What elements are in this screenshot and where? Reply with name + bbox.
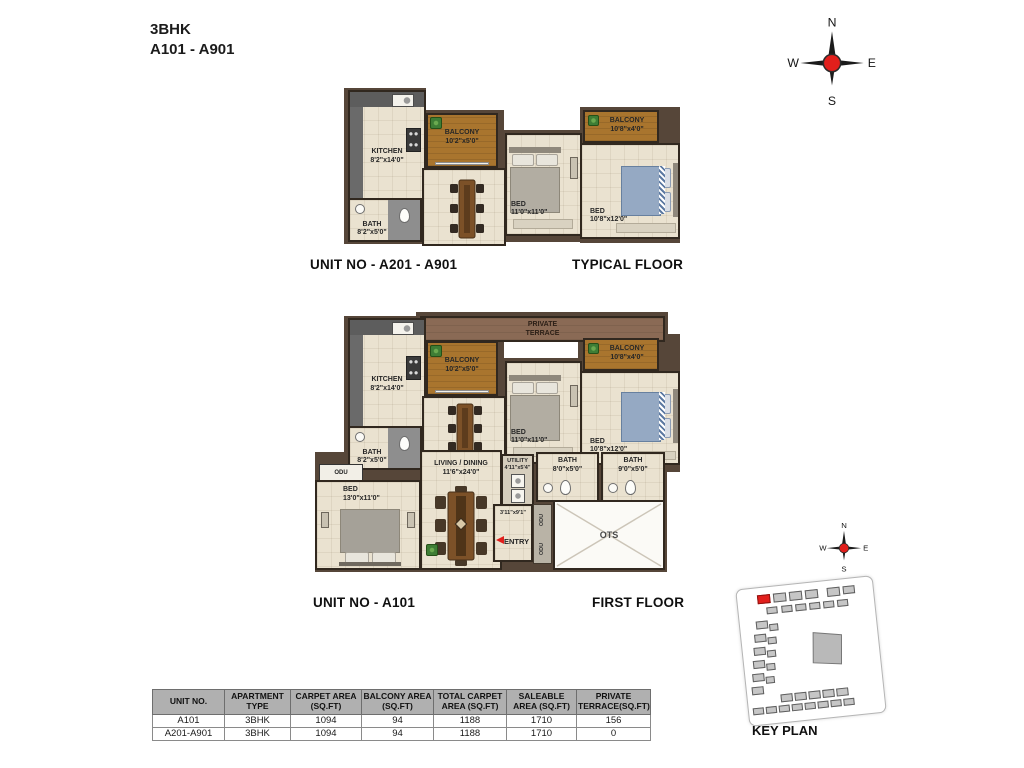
table-cell: 3BHK (225, 714, 291, 727)
unit-label-typical: UNIT NO - A201 - A901 (310, 257, 457, 272)
compass-s-label: S (828, 94, 836, 108)
table-cell: 1094 (291, 727, 362, 740)
entry-arrow-icon (496, 536, 504, 544)
toilet-icon (399, 436, 410, 451)
dining-table-icon (450, 174, 484, 244)
room-balcony-2: BALCONY 10'8"x4'0" (583, 110, 659, 143)
room-name: KITCHEN (356, 148, 418, 157)
table-cell: 1188 (434, 714, 507, 727)
key-plan-building (830, 699, 842, 707)
room-dim: 8'2"x5'0" (352, 229, 392, 238)
bed-icon (339, 508, 401, 566)
room-name: BATH (538, 457, 597, 466)
plant-icon (430, 117, 442, 129)
table-cell: A101 (153, 714, 225, 727)
room-name: UTILITY (503, 458, 532, 465)
bed-icon (620, 163, 678, 217)
balcony-railing (435, 390, 489, 393)
table-header-cell: PRIVATE TERRACE(SQ.FT) (577, 690, 651, 715)
rug (513, 219, 573, 229)
key-plan-building (836, 687, 849, 696)
room-name: LIVING / DINING (422, 460, 500, 469)
room-dim: 9'0"x5'0" (603, 466, 663, 475)
room-bed-1: BED 11'0"x11'0" (505, 361, 582, 464)
page-title: 3BHK A101 - A901 (150, 20, 235, 59)
room-dining (422, 396, 506, 456)
washer-icon (392, 322, 414, 335)
entry-dim: 3'11"x9'1" (495, 510, 531, 517)
room-ots: OTS (553, 500, 665, 570)
key-plan-building (822, 689, 835, 698)
room-dim: 10'2"x5'0" (428, 138, 496, 147)
room-dim: 8'0"x5'0" (538, 466, 597, 475)
room-utility: UTILITY 4'11"x5'4" (501, 454, 534, 506)
room-name: BED (511, 429, 547, 438)
bed-icon (620, 389, 678, 443)
key-plan-building (781, 605, 793, 613)
room-kitchen: KITCHEN 8'2"x14'0" (348, 318, 426, 428)
odu-strip: ODU ODU (533, 504, 552, 564)
washer-icon (392, 94, 414, 107)
key-plan-building (769, 623, 779, 631)
nightstand-icon (407, 512, 415, 528)
room-name: BED (343, 486, 380, 495)
key-plan-building (843, 698, 855, 706)
room-dim: 8'2"x14'0" (356, 385, 418, 394)
table-header-cell: BALCONY AREA (SQ.FT) (362, 690, 434, 715)
table-header-cell: APARTMENT TYPE (225, 690, 291, 715)
room-dining (422, 168, 506, 246)
odu-label: ODU (539, 542, 545, 554)
washer-icon (511, 489, 525, 503)
key-plan-building (794, 692, 807, 701)
room-living-dining: LIVING / DINING 11'6"x24'0" (420, 450, 502, 570)
toilet-icon (625, 480, 636, 495)
room-dim: 11'0"x11'0" (511, 209, 547, 218)
room-dim: 8'2"x5'0" (352, 457, 392, 466)
room-name: BED (590, 438, 627, 447)
compass-s-label: S (841, 564, 846, 573)
room-name: BATH (603, 457, 663, 466)
key-plan-building (842, 585, 855, 594)
key-plan-building (795, 603, 807, 611)
table-cell: 1188 (434, 727, 507, 740)
table-cell: 1710 (507, 714, 577, 727)
compass-e-label: E (868, 56, 876, 70)
dresser-icon (570, 385, 578, 407)
key-plan-building (773, 592, 787, 602)
key-plan-building (767, 650, 777, 658)
room-name: BALCONY (428, 129, 496, 138)
key-plan-building (766, 663, 776, 671)
table-cell: 0 (577, 727, 651, 740)
room-name: BED (511, 201, 547, 210)
room-dim: 8'2"x14'0" (356, 157, 418, 166)
table-header-cell: TOTAL CARPET AREA (SQ.FT) (434, 690, 507, 715)
key-plan-building (753, 707, 765, 715)
key-plan-building (791, 703, 803, 711)
table-cell: A201-A901 (153, 727, 225, 740)
room-name: KITCHEN (356, 376, 418, 385)
key-plan-building (766, 706, 778, 714)
room-bath-3: BATH 9'0"x5'0" (601, 452, 665, 502)
compass-rose-icon-small: N W E S (819, 520, 869, 574)
key-plan-building (779, 705, 791, 713)
key-plan (735, 575, 887, 727)
key-plan-highlighted-building (757, 594, 771, 604)
entry-label: ENTRY (504, 537, 529, 546)
key-plan-building (837, 599, 849, 607)
living-table-icon (434, 486, 488, 566)
odu-label: ODU (334, 470, 347, 476)
room-dim: 10'2"x5'0" (428, 366, 496, 375)
room-name: BATH (352, 221, 392, 230)
table-cell: 94 (362, 727, 434, 740)
floor-plan-first: PRIVATE TERRACE KITCHEN 8'2"x14'0" BATH … (315, 312, 680, 574)
room-kitchen: KITCHEN 8'2"x14'0" (348, 90, 426, 200)
room-bath-2: BATH 8'0"x5'0" (536, 452, 599, 502)
plant-icon (426, 544, 438, 556)
room-name: OTS (600, 530, 619, 540)
table-header-row: UNIT NO.APARTMENT TYPECARPET AREA (SQ.FT… (153, 690, 651, 715)
table-cell: 156 (577, 714, 651, 727)
dining-table-icon (448, 400, 482, 456)
key-plan-building (804, 702, 816, 710)
table-cell: 3BHK (225, 727, 291, 740)
sink-icon (543, 483, 553, 493)
key-plan-building (805, 589, 819, 599)
key-plan-building (752, 673, 765, 682)
sink-icon (355, 432, 365, 442)
key-plan-building (823, 600, 835, 608)
balcony-railing (435, 162, 489, 165)
room-bath: BATH 8'2"x5'0" (348, 198, 422, 242)
room-bed-1: BED 11'0"x11'0" (505, 133, 582, 236)
room-name: BATH (352, 449, 392, 458)
room-balcony-1: BALCONY 10'2"x5'0" (426, 113, 498, 168)
table-header-cell: CARPET AREA (SQ.FT) (291, 690, 362, 715)
room-dim: 10'8"x12'0" (590, 216, 627, 225)
room-bed-2: BED 10'8"x12'0" (580, 143, 680, 239)
room-name: BALCONY (428, 357, 496, 366)
key-plan-building (817, 700, 829, 708)
area-table-head: UNIT NO.APARTMENT TYPECARPET AREA (SQ.FT… (153, 690, 651, 715)
floor-plan-sheet: 3BHK A101 - A901 N W E S KITCHEN 8'2"x14… (0, 0, 1024, 768)
compass-e-label: E (863, 543, 868, 552)
table-cell: 1710 (507, 727, 577, 740)
room-name: BALCONY (597, 345, 657, 354)
key-plan-building (753, 660, 766, 669)
toilet-icon (560, 480, 571, 495)
floor-label-first: FIRST FLOOR (592, 595, 684, 610)
table-header-cell: UNIT NO. (153, 690, 225, 715)
sink-icon (355, 204, 365, 214)
plant-icon (430, 345, 442, 357)
room-dim: 10'8"x12'0" (590, 446, 627, 455)
unit-label-first: UNIT NO - A101 (313, 595, 415, 610)
key-plan-building (751, 686, 764, 695)
room-bath: BATH 8'2"x5'0" (348, 426, 422, 470)
area-table-body: A1013BHK10949411881710156A201-A9013BHK10… (153, 714, 651, 741)
room-balcony-1: BALCONY 10'2"x5'0" (426, 341, 498, 396)
nightstand-icon (321, 512, 329, 528)
key-plan-building (756, 620, 769, 629)
room-bed-2: BED 10'8"x12'0" (580, 371, 680, 465)
table-header-cell: SALEABLE AREA (SQ.FT) (507, 690, 577, 715)
key-plan-building (780, 693, 793, 702)
floor-label-typical: TYPICAL FLOOR (572, 257, 683, 272)
table-row: A201-A9013BHK109494118817100 (153, 727, 651, 740)
room-name: BALCONY (597, 117, 657, 126)
odu-label: ODU (539, 513, 545, 525)
sink-icon (608, 483, 618, 493)
table-row: A1013BHK10949411881710156 (153, 714, 651, 727)
room-dim: 11'6"x24'0" (422, 469, 500, 478)
room-dim: 13'0"x11'0" (343, 495, 380, 504)
toilet-icon (399, 208, 410, 223)
table-cell: 94 (362, 714, 434, 727)
compass-n-label: N (841, 521, 847, 530)
key-plan-building (789, 591, 803, 601)
key-plan-building (808, 690, 821, 699)
room-name: BED (590, 208, 627, 217)
title-units: A101 - A901 (150, 40, 235, 60)
dresser-icon (570, 157, 578, 179)
floor-plan-typical: KITCHEN 8'2"x14'0" BATH 8'2"x5'0" BALCON… (340, 86, 680, 250)
key-plan-building (809, 602, 821, 610)
key-plan-building (753, 647, 766, 656)
key-plan-label: KEY PLAN (752, 723, 818, 738)
area-table: UNIT NO.APARTMENT TYPECARPET AREA (SQ.FT… (152, 689, 651, 741)
table-cell: 1094 (291, 714, 362, 727)
compass-n-label: N (828, 15, 837, 29)
key-plan-buildings (736, 576, 885, 725)
room-bed-3: BED 13'0"x11'0" (315, 480, 421, 570)
room-dim: 11'0"x11'0" (511, 437, 547, 446)
room-entry: 3'11"x9'1" ENTRY (493, 504, 533, 562)
key-plan-building (766, 606, 778, 614)
compass-rose-icon-large: N W E S (786, 12, 878, 110)
room-dim: 10'8"x4'0" (597, 354, 657, 363)
room-balcony-2: BALCONY 10'8"x4'0" (583, 338, 659, 371)
key-plan-building (767, 637, 777, 645)
room-dim: 4'11"x5'4" (503, 465, 532, 472)
key-plan-building (765, 676, 775, 684)
washer-icon (511, 474, 525, 488)
key-plan-building (827, 587, 841, 597)
room-dim: 10'8"x4'0" (597, 126, 657, 135)
room-name: PRIVATE TERRACE (518, 321, 568, 339)
compass-w-label: W (787, 56, 799, 70)
key-plan-building (754, 634, 767, 643)
title-type: 3BHK (150, 20, 235, 40)
compass-w-label: W (819, 543, 827, 552)
